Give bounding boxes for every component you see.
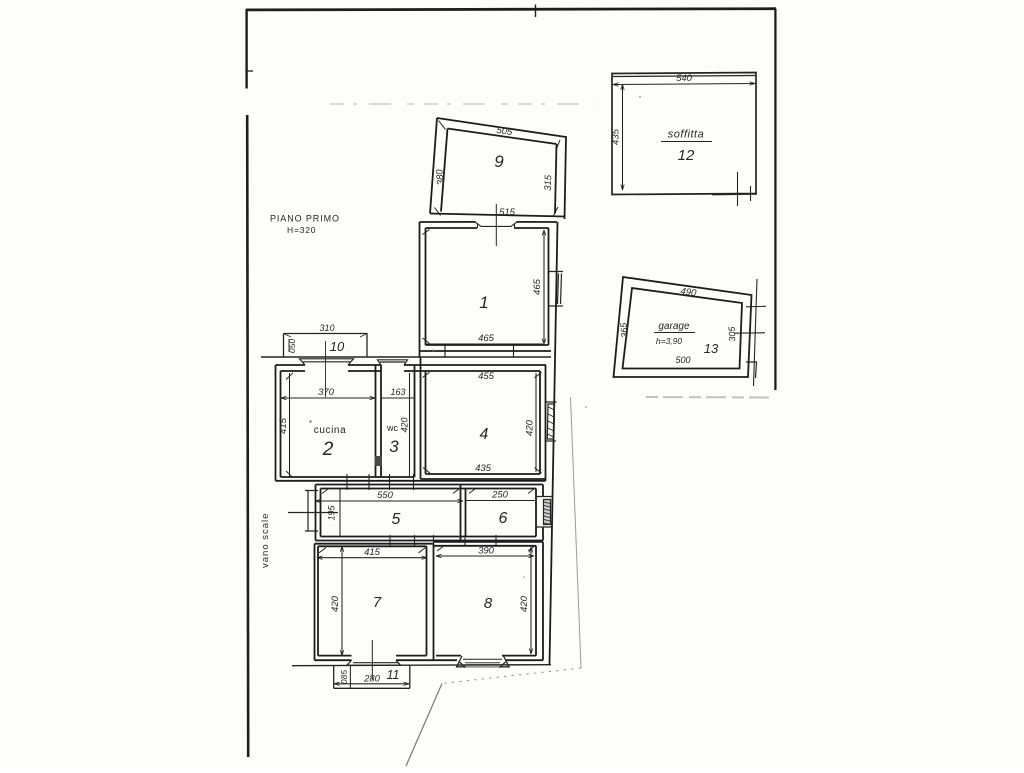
svg-text:435: 435 — [611, 128, 622, 145]
svg-text:420: 420 — [519, 595, 530, 612]
svg-text:420: 420 — [525, 419, 536, 436]
svg-text:420: 420 — [330, 595, 341, 612]
svg-text:5: 5 — [392, 511, 401, 528]
svg-text:515: 515 — [499, 207, 516, 218]
svg-text:455: 455 — [478, 371, 495, 382]
svg-text:2: 2 — [322, 439, 334, 460]
svg-text:415: 415 — [278, 417, 289, 434]
svg-text:465: 465 — [532, 278, 543, 295]
svg-text:163: 163 — [390, 387, 405, 397]
svg-text:4: 4 — [480, 426, 489, 443]
svg-text:12: 12 — [678, 147, 695, 164]
svg-text:315: 315 — [543, 174, 555, 191]
svg-text:3: 3 — [389, 437, 399, 456]
svg-text:PIANO PRIMO: PIANO PRIMO — [270, 214, 340, 224]
svg-text:310: 310 — [319, 323, 334, 333]
svg-text:420: 420 — [400, 417, 410, 432]
svg-text:250: 250 — [491, 490, 509, 501]
svg-text:9: 9 — [494, 152, 504, 171]
svg-text:6: 6 — [499, 510, 508, 527]
svg-text:h=3,90: h=3,90 — [656, 336, 683, 346]
svg-text:370: 370 — [318, 387, 335, 398]
svg-text:280: 280 — [363, 674, 381, 685]
svg-text:8: 8 — [484, 595, 493, 612]
svg-text:415: 415 — [364, 547, 381, 558]
svg-text:195: 195 — [327, 505, 337, 521]
svg-text:vano scale: vano scale — [260, 513, 271, 568]
svg-text:540: 540 — [676, 73, 693, 84]
svg-text:465: 465 — [478, 333, 495, 344]
svg-text:500: 500 — [675, 355, 690, 365]
svg-text:1: 1 — [479, 293, 488, 312]
svg-text:7: 7 — [373, 594, 382, 611]
svg-text:10: 10 — [330, 339, 345, 354]
svg-text:11: 11 — [387, 668, 400, 682]
svg-text:cucina: cucina — [314, 425, 347, 436]
svg-text:490: 490 — [680, 286, 698, 299]
svg-text:050: 050 — [287, 339, 297, 353]
svg-text:380: 380 — [434, 168, 446, 185]
svg-text:soffitta: soffitta — [668, 129, 704, 141]
svg-text:505: 505 — [496, 125, 514, 138]
svg-text:390: 390 — [478, 546, 495, 557]
svg-text:550: 550 — [377, 490, 394, 501]
svg-text:wc: wc — [386, 423, 398, 433]
svg-text:085: 085 — [339, 670, 349, 684]
svg-text:H=320: H=320 — [287, 225, 316, 235]
svg-text:13: 13 — [704, 341, 719, 356]
svg-text:garage: garage — [658, 321, 690, 332]
svg-text:435: 435 — [475, 463, 492, 474]
svg-text:365: 365 — [618, 321, 629, 338]
